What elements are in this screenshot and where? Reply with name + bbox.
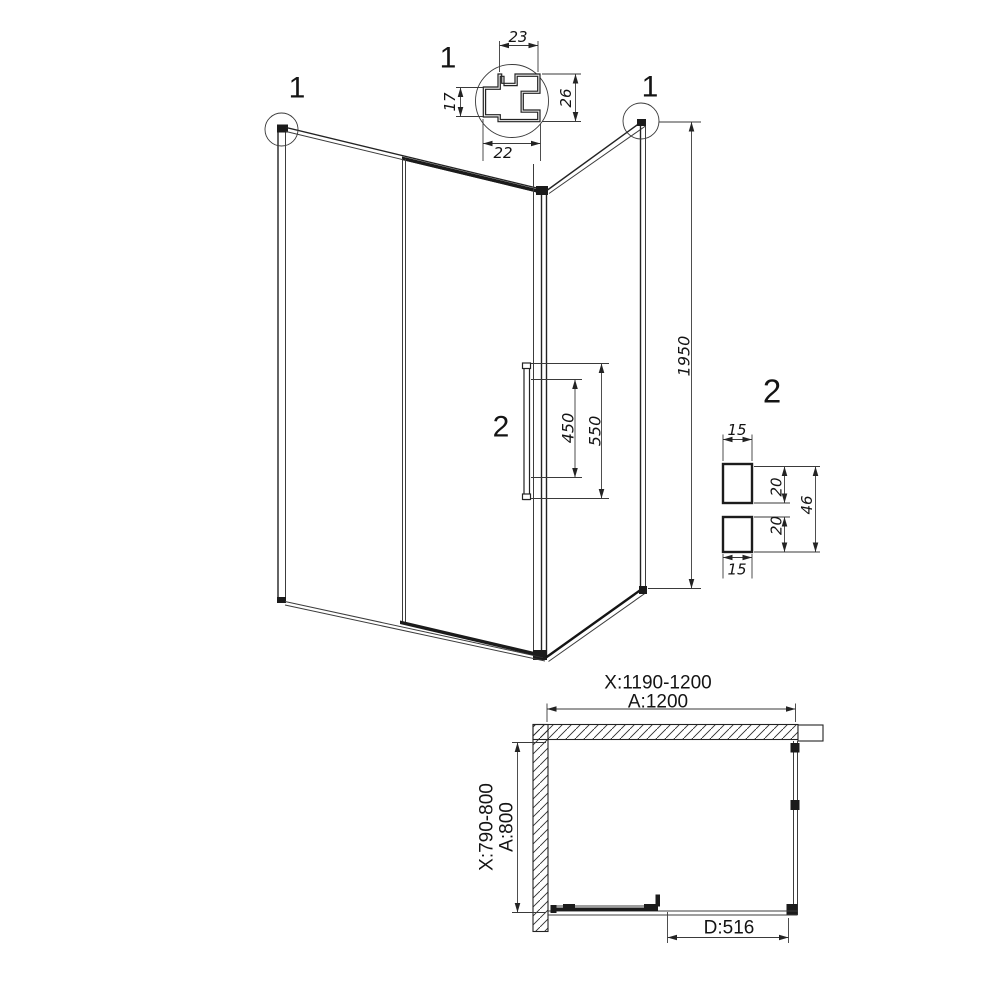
plan-side-panel-mid-bracket <box>791 800 800 810</box>
detail1-marker-label-left: 1 <box>289 72 306 105</box>
dim-15b-text: 15 <box>727 561 746 579</box>
plan-door-roller-left <box>563 904 575 911</box>
plan-corner-bracket <box>787 904 798 915</box>
detail-1: 1 23 17 26 22 <box>440 28 581 162</box>
side-panel-bottom-line-2 <box>549 593 646 662</box>
door-top-track-bar <box>402 157 541 194</box>
dim-door-text: D:516 <box>704 918 755 939</box>
drawing-canvas: 1 1 2 1950 450 550 1 23 <box>0 0 1001 1000</box>
dim-20t-text: 20 <box>768 477 786 496</box>
dim-width-text: A:1200 <box>628 692 688 713</box>
handle-section-top <box>723 464 752 503</box>
door-handle <box>523 363 531 500</box>
plan-top-wall <box>533 725 798 740</box>
detail2-marker-label-handle: 2 <box>493 411 510 444</box>
plan-door-handle <box>656 895 661 907</box>
plan-view: X:1190-1200 A:1200 X:790-800 A:800 D:516 <box>477 673 824 944</box>
detail1-marker-label-right: 1 <box>642 71 659 104</box>
handle-bar <box>524 364 530 500</box>
plan-side-panel-top-bracket <box>791 743 800 753</box>
dim-depth-range-text: X:790-800 <box>477 783 498 871</box>
dim-1950: 1950 <box>648 122 701 589</box>
bottom-tray-line-2 <box>285 605 545 661</box>
side-bottom-corner-bracket <box>639 586 647 594</box>
plan-wall-profile-block <box>798 725 823 741</box>
dim-width: X:1190-1200 A:1200 <box>547 673 796 723</box>
door-bottom-track-bar <box>400 621 543 658</box>
plan-door-left-bracket <box>551 905 557 913</box>
dim-handle: 450 550 <box>531 364 609 499</box>
side-panel-bottom-line-1 <box>546 590 641 658</box>
dim-20b-text: 20 <box>768 516 786 535</box>
side-panel-top-line-1 <box>548 123 641 191</box>
bottom-tray-line-1 <box>285 602 543 658</box>
dim-width-range-text: X:1190-1200 <box>604 673 711 694</box>
rail-profile-section <box>483 74 540 122</box>
shower-enclosure-technical-drawing: 1 1 2 1950 450 550 1 23 <box>0 0 1001 1000</box>
handle-top-mount <box>523 363 531 369</box>
dim-15t-text: 15 <box>727 421 746 439</box>
dim-door: D:516 <box>668 912 789 943</box>
dim-17-text: 17 <box>441 92 459 112</box>
dim-23-text: 23 <box>508 28 527 46</box>
dim-22-text: 22 <box>493 144 512 162</box>
dim-depth-text: A:800 <box>497 802 518 852</box>
side-top-corner-bracket <box>637 119 646 126</box>
dim-46-text: 46 <box>798 495 816 514</box>
top-junction-bracket <box>536 186 548 195</box>
dim-550-text: 550 <box>586 416 605 447</box>
bottom-left-corner-bracket <box>277 597 286 603</box>
handle-section-bottom <box>723 517 752 552</box>
detail1-title: 1 <box>440 42 457 75</box>
dim-1950-text: 1950 <box>675 336 694 377</box>
plan-left-wall <box>533 725 548 932</box>
dim-26-text: 26 <box>557 88 575 107</box>
handle-bottom-mount <box>523 494 531 500</box>
dim-450-text: 450 <box>559 413 578 444</box>
detail2-title: 2 <box>763 373 781 410</box>
detail-2: 2 15 15 20 20 46 <box>723 373 820 579</box>
